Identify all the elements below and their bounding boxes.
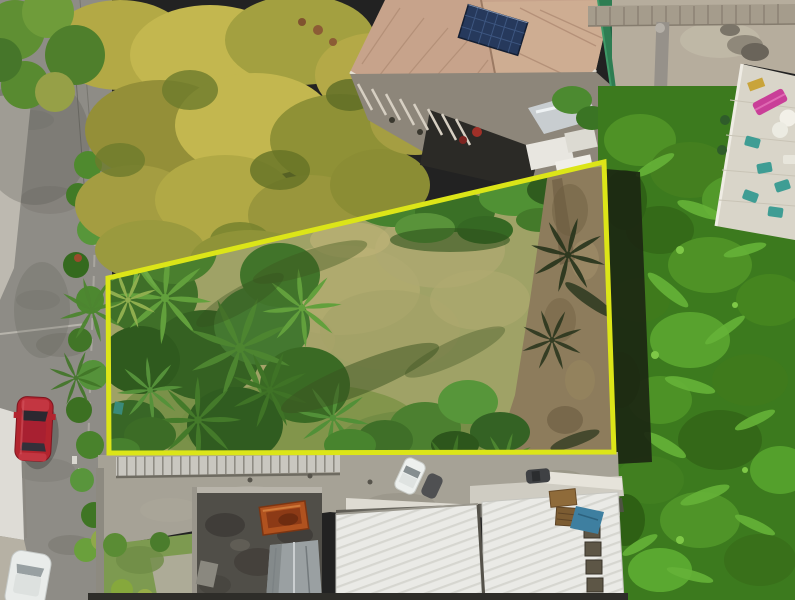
- white-roof-a: [336, 504, 482, 600]
- boundary-wall: [96, 468, 104, 600]
- palm-shadow: [14, 262, 70, 358]
- water-tank: [259, 501, 308, 535]
- aerial-photo: [0, 0, 795, 600]
- bottom-roof-edge: [88, 593, 628, 600]
- dark-roof-building: [192, 487, 322, 600]
- round-table: [772, 122, 788, 138]
- windshield: [21, 410, 47, 421]
- dark-car: [525, 468, 550, 484]
- aerial-photo-canvas: [0, 0, 795, 600]
